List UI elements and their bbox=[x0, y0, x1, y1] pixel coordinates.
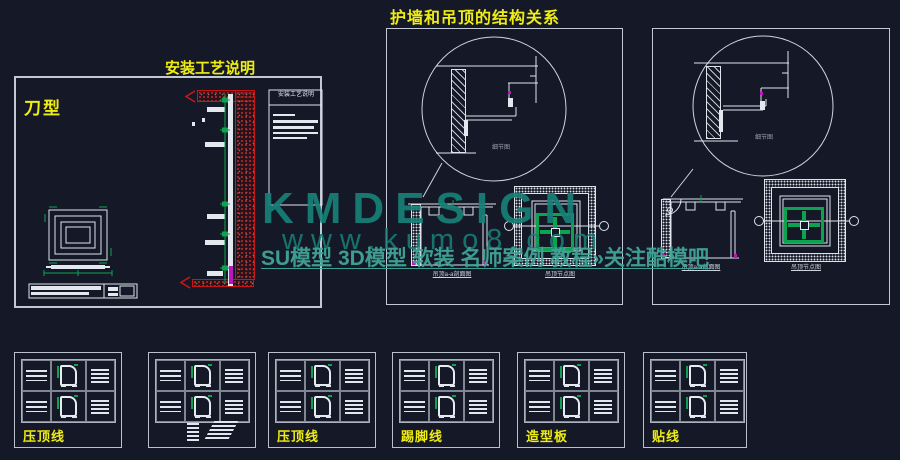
profile-cell bbox=[464, 360, 493, 391]
profile-cell bbox=[400, 360, 429, 391]
profile-cell bbox=[22, 391, 51, 422]
profile-panel-4: 踢脚线 bbox=[392, 352, 500, 448]
profile-panel-label: 贴线 bbox=[652, 426, 680, 445]
section-caption: 吊顶a-a剖面图 bbox=[661, 265, 741, 272]
structure-detail-panel-2: 细节图 吊顶a-a剖面图 吊顶节点图 bbox=[652, 28, 890, 305]
profile-cell bbox=[464, 391, 493, 422]
extra-profile-shape bbox=[204, 421, 239, 441]
profile-panel-label: 踢脚线 bbox=[401, 426, 443, 445]
profile-cell bbox=[185, 391, 220, 422]
extra-profile-shape bbox=[187, 423, 199, 443]
structure-detail-panel-1: 细节图 吊顶a-a剖面图 吊顶节点图 bbox=[386, 28, 623, 305]
install-process-panel: 刀型 bbox=[14, 76, 322, 308]
profile-cell bbox=[305, 391, 340, 422]
plan-caption: 吊顶节点图 bbox=[773, 265, 839, 272]
profile-grid bbox=[21, 359, 116, 423]
profile-panel-label: 造型板 bbox=[526, 426, 568, 445]
left-panel-heading: 安装工艺说明 bbox=[100, 57, 320, 78]
profile-panel-2 bbox=[148, 352, 256, 448]
profile-cell bbox=[715, 391, 744, 422]
profile-cell bbox=[680, 391, 715, 422]
profile-cell bbox=[156, 360, 185, 391]
detail-label: 细节图 bbox=[744, 135, 784, 142]
profile-cell bbox=[185, 360, 220, 391]
profile-cell bbox=[86, 391, 115, 422]
profile-cell bbox=[554, 360, 589, 391]
profile-cell bbox=[651, 391, 680, 422]
profile-cell bbox=[305, 360, 340, 391]
profile-cell bbox=[589, 391, 618, 422]
profile-panel-5: 造型板 bbox=[517, 352, 625, 448]
drawing-title: 护墙和吊顶的结构关系 bbox=[310, 4, 640, 28]
profile-cell bbox=[651, 360, 680, 391]
legend-title: 安装工艺说明 bbox=[271, 92, 321, 99]
profile-cell bbox=[156, 391, 185, 422]
profile-grid bbox=[155, 359, 250, 423]
profile-cell bbox=[589, 360, 618, 391]
profile-cell bbox=[276, 391, 305, 422]
ceiling-detail-drawing bbox=[387, 29, 624, 306]
plan-caption: 吊顶节点图 bbox=[525, 272, 595, 279]
profile-panel-1: 压顶线 bbox=[14, 352, 122, 448]
profile-cell bbox=[400, 391, 429, 422]
profile-cell bbox=[276, 360, 305, 391]
cad-drawing-sheet: 护墙和吊顶的结构关系 安装工艺说明 刀型 bbox=[0, 0, 900, 460]
green-coffer-motif bbox=[536, 213, 574, 251]
profile-cell bbox=[429, 360, 464, 391]
green-coffer-motif bbox=[784, 207, 824, 243]
profile-cell bbox=[525, 391, 554, 422]
profile-cell bbox=[220, 391, 249, 422]
profile-cell bbox=[680, 360, 715, 391]
profile-cell bbox=[86, 360, 115, 391]
profile-grid bbox=[275, 359, 370, 423]
profile-panel-label: 压顶线 bbox=[23, 426, 65, 445]
wall-section-drawing bbox=[16, 78, 324, 310]
profile-panel-3: 压顶线 bbox=[268, 352, 376, 448]
profile-panel-6: 贴线 bbox=[643, 352, 747, 448]
profile-cell bbox=[51, 360, 86, 391]
profile-cell bbox=[340, 360, 369, 391]
profile-cell bbox=[340, 391, 369, 422]
profile-cell bbox=[220, 360, 249, 391]
profile-cell bbox=[51, 391, 86, 422]
profile-grid bbox=[650, 359, 745, 423]
profile-grid bbox=[524, 359, 619, 423]
section-caption: 吊顶a-a剖面图 bbox=[412, 272, 492, 279]
profile-panel-label: 压顶线 bbox=[277, 426, 319, 445]
profile-cell bbox=[554, 391, 589, 422]
detail-label: 细节图 bbox=[481, 145, 521, 152]
profile-cell bbox=[715, 360, 744, 391]
profile-cell bbox=[429, 391, 464, 422]
profile-cell bbox=[22, 360, 51, 391]
profile-cell bbox=[525, 360, 554, 391]
profile-grid bbox=[399, 359, 494, 423]
